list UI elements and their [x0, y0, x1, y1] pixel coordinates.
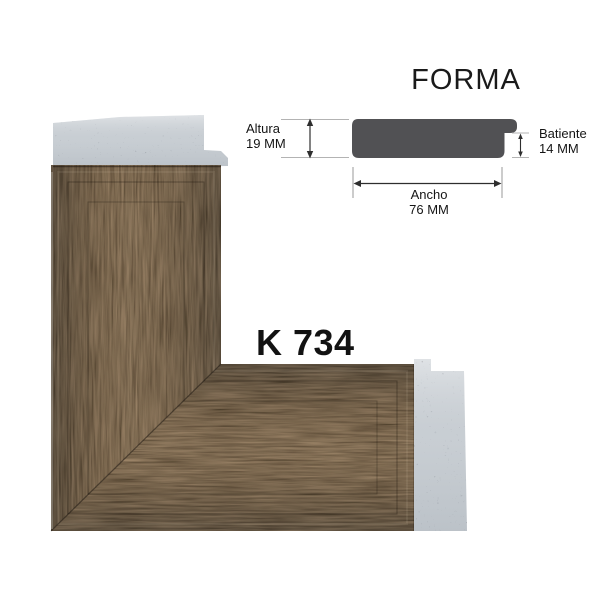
product-sheet: FORMA Altura 19 MM Batiente 14 MM Ancho … — [0, 0, 600, 600]
batiente-arrowhead-down-icon — [518, 152, 523, 158]
altura-dimension-label: Altura 19 MM — [246, 121, 286, 151]
batiente-arrowhead-up-icon — [518, 134, 523, 140]
product-code: K 734 — [256, 322, 355, 364]
shape-section-title: FORMA — [398, 64, 534, 97]
ancho-arrowhead-right-icon — [494, 180, 502, 187]
moulding-profile-shape — [352, 119, 517, 158]
ancho-value: 76 MM — [383, 202, 475, 217]
altura-label: Altura — [246, 121, 286, 136]
ancho-label: Ancho — [383, 187, 475, 202]
ancho-arrowhead-left-icon — [354, 180, 362, 187]
altura-value: 19 MM — [246, 136, 286, 151]
batiente-label: Batiente — [539, 126, 587, 141]
batiente-value: 14 MM — [539, 141, 587, 156]
ancho-dimension-label: Ancho 76 MM — [383, 187, 475, 217]
batiente-dimension-label: Batiente 14 MM — [539, 126, 587, 156]
